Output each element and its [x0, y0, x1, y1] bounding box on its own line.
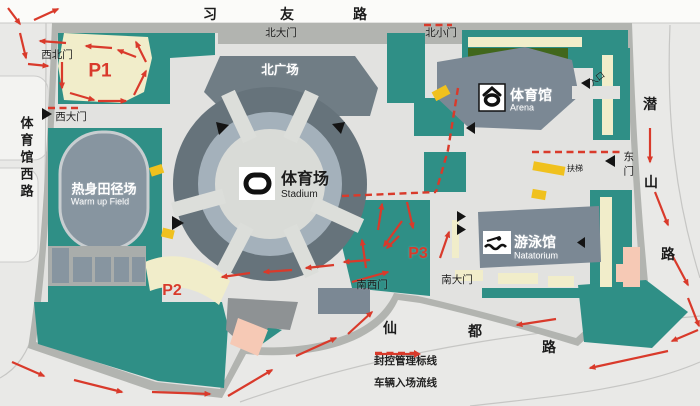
legend-row-flow-line: 车辆入场流线 — [374, 371, 437, 393]
vehicle-flow-arrow — [12, 362, 44, 376]
legend-arrow-icon — [374, 349, 422, 359]
vehicle-flow-arrow — [86, 46, 112, 48]
control-management-line — [436, 88, 458, 192]
vehicle-flow-arrow — [118, 50, 136, 57]
vehicle-flow-arrow — [74, 380, 122, 392]
vehicle-flow-arrow — [136, 42, 146, 62]
vehicle-flow-arrow — [28, 64, 48, 66]
vehicle-flow-arrow — [362, 240, 366, 268]
vehicle-flow-arrow — [440, 232, 449, 258]
vehicle-flow-arrow — [348, 312, 372, 334]
vehicle-flow-arrow — [34, 9, 58, 20]
vehicle-flow-arrow — [152, 392, 210, 394]
vehicle-flow-arrow — [20, 33, 26, 58]
control-management-line — [342, 192, 436, 196]
vehicle-flow-arrow — [70, 93, 94, 100]
vehicle-flow-arrow — [264, 270, 292, 272]
map-legend: 封控管理标线 车辆入场流线 — [374, 349, 437, 393]
vehicle-flow-arrow — [8, 8, 20, 24]
vehicle-flow-arrow — [40, 41, 66, 43]
flow-overlay-svg — [0, 0, 700, 406]
vehicle-flow-arrow — [407, 202, 413, 228]
vehicle-flow-arrow — [306, 265, 334, 268]
vehicle-flow-arrow — [517, 319, 556, 325]
stadium-area-map: 习友路体育馆西路潜山路仙都路北大门北小门西北门西大门南西门南大门东门入口扶梯北广… — [0, 0, 700, 406]
control-line-layer — [48, 25, 624, 196]
vehicle-flow-arrow — [296, 338, 336, 356]
legend-flow-line-label: 车辆入场流线 — [374, 375, 437, 390]
vehicle-flow-arrow — [672, 255, 688, 285]
flow-arrow-layer — [8, 8, 699, 396]
vehicle-flow-arrow — [352, 272, 388, 282]
vehicle-flow-arrow — [590, 351, 668, 368]
vehicle-flow-arrow — [672, 330, 698, 341]
vehicle-flow-arrow — [378, 204, 382, 230]
vehicle-flow-arrow — [228, 370, 272, 396]
vehicle-flow-arrow — [134, 71, 146, 95]
vehicle-flow-arrow — [688, 298, 699, 326]
vehicle-flow-arrow — [655, 192, 668, 225]
vehicle-flow-arrow — [222, 273, 250, 277]
